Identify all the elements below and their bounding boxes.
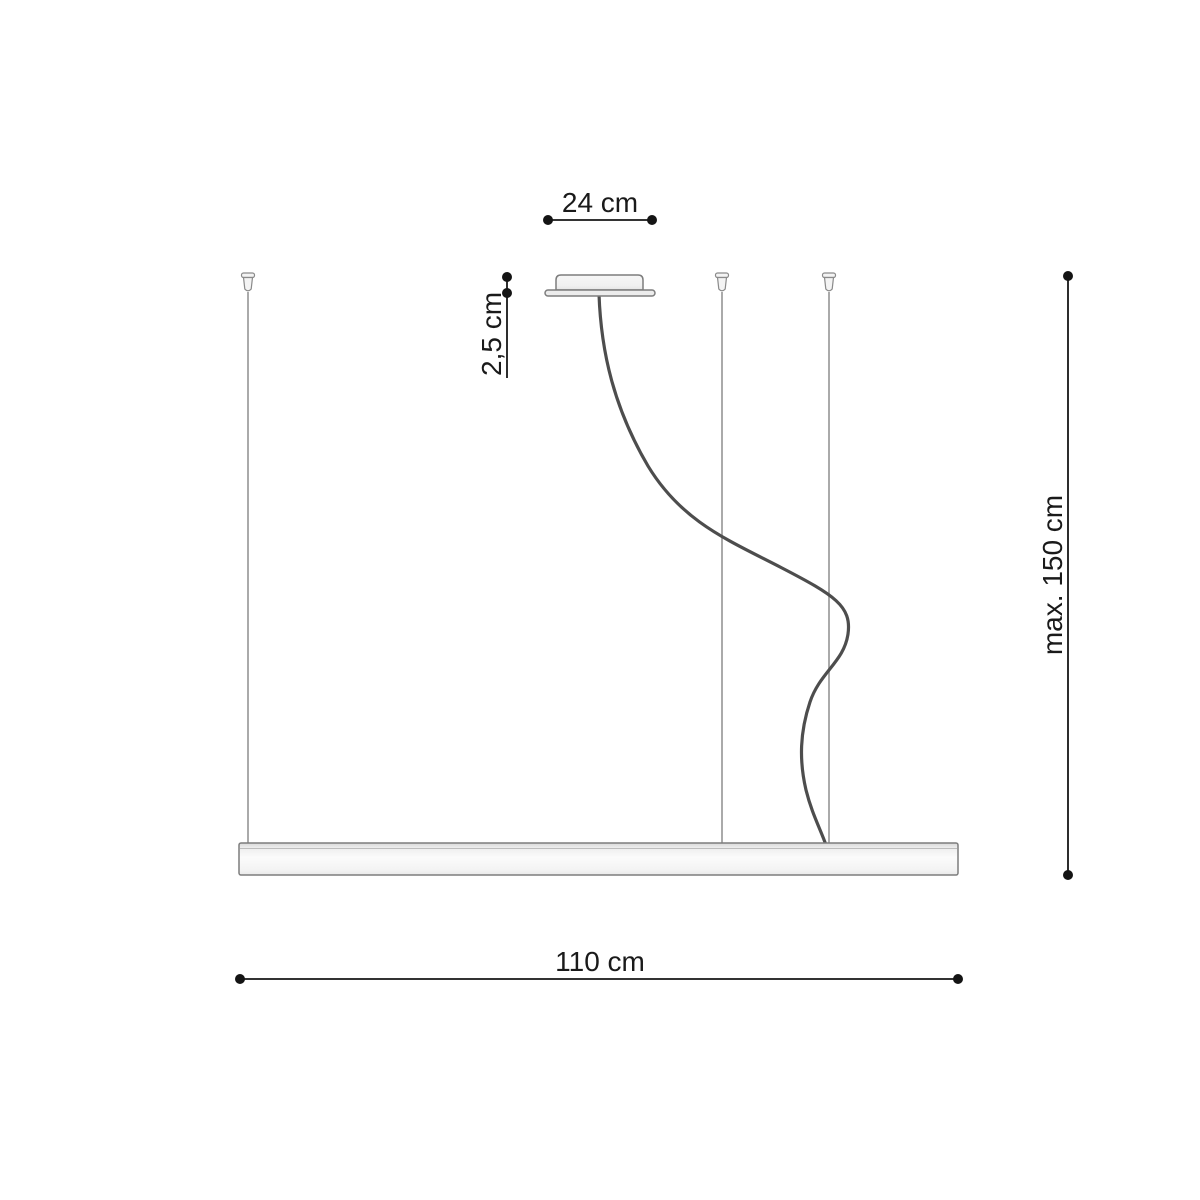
canopy-flange: [545, 290, 655, 296]
wire-connector: [823, 273, 836, 291]
dim-suspension-max: max. 150 cm: [1037, 271, 1073, 880]
dim-endpoint-dot: [235, 974, 245, 984]
power-cable: [599, 294, 849, 845]
canopy-height-label: 2,5 cm: [476, 292, 507, 376]
connector-body: [825, 278, 834, 291]
suspension-wire-middle: [716, 273, 729, 844]
lamp-bar: [239, 843, 958, 875]
ceiling-canopy: [545, 275, 655, 296]
dim-endpoint-dot: [1063, 870, 1073, 880]
diagram-canvas: 24 cm 2,5 cm max. 150 cm 110 cm: [0, 0, 1200, 1200]
connector-cap: [242, 273, 255, 278]
connector-cap: [716, 273, 729, 278]
dim-canopy-width: 24 cm: [543, 187, 657, 225]
dim-endpoint-dot: [502, 272, 512, 282]
connector-cap: [823, 273, 836, 278]
lamp-bar-body: [239, 843, 958, 875]
wire-connector: [716, 273, 729, 291]
dim-endpoint-dot: [953, 974, 963, 984]
connector-body: [244, 278, 253, 291]
dim-endpoint-dot: [543, 215, 553, 225]
bar-length-label: 110 cm: [555, 946, 645, 977]
dim-endpoint-dot: [1063, 271, 1073, 281]
suspension-wire-left: [242, 273, 255, 844]
suspension-max-label: max. 150 cm: [1037, 495, 1068, 655]
canopy-body: [556, 275, 643, 290]
dim-endpoint-dot: [647, 215, 657, 225]
wire-connector: [242, 273, 255, 291]
pendant-lamp-diagram: 24 cm 2,5 cm max. 150 cm 110 cm: [0, 0, 1200, 1200]
connector-body: [718, 278, 727, 291]
canopy-width-label: 24 cm: [562, 187, 638, 218]
dim-canopy-height: 2,5 cm: [476, 272, 512, 378]
dim-bar-length: 110 cm: [235, 946, 963, 984]
suspension-wire-right: [823, 273, 836, 844]
